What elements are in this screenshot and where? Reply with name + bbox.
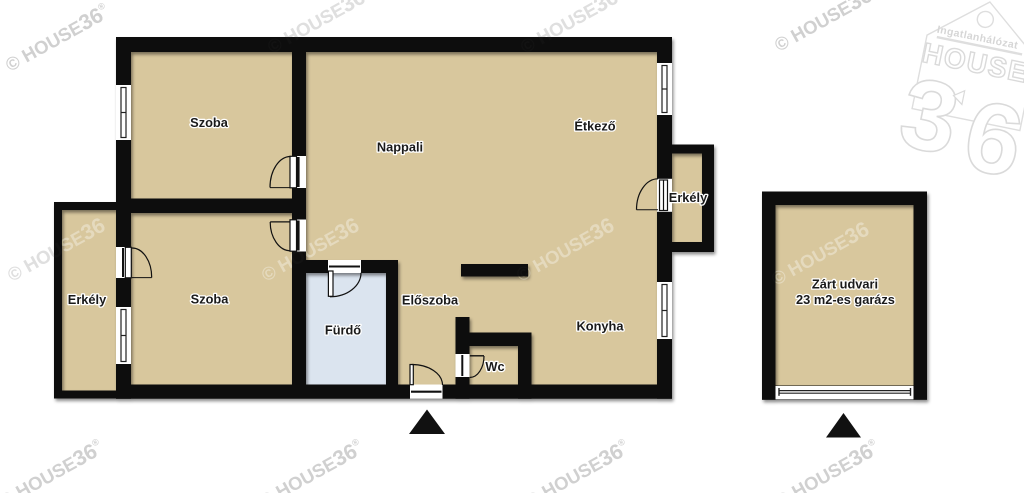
svg-text:Étkező: Étkező — [574, 119, 615, 134]
svg-text:© HOUSE36®: © HOUSE36® — [1, 0, 114, 76]
svg-text:6: 6 — [955, 79, 1024, 200]
svg-text:Szoba: Szoba — [191, 292, 230, 307]
svg-text:Konyha: Konyha — [577, 319, 625, 334]
svg-text:Wc: Wc — [485, 359, 504, 374]
svg-text:© HOUSE36®: © HOUSE36® — [770, 0, 883, 56]
svg-text:3: 3 — [891, 56, 968, 177]
svg-text:Zárt udvari: Zárt udvari — [812, 277, 878, 292]
svg-text:Erkély: Erkély — [669, 190, 708, 205]
svg-text:© HOUSE36®: © HOUSE36® — [771, 435, 884, 493]
svg-text:© HOUSE36®: © HOUSE36® — [255, 435, 368, 493]
svg-text:Erkély: Erkély — [68, 292, 107, 307]
svg-text:© HOUSE36®: © HOUSE36® — [521, 435, 634, 493]
svg-text:© HOUSE36®: © HOUSE36® — [0, 435, 107, 493]
svg-text:Fürdő: Fürdő — [325, 323, 361, 338]
svg-text:Előszoba: Előszoba — [402, 293, 459, 308]
svg-text:Szoba: Szoba — [190, 115, 229, 130]
svg-text:23 m2-es garázs: 23 m2-es garázs — [796, 292, 895, 307]
svg-text:Nappali: Nappali — [377, 140, 423, 155]
